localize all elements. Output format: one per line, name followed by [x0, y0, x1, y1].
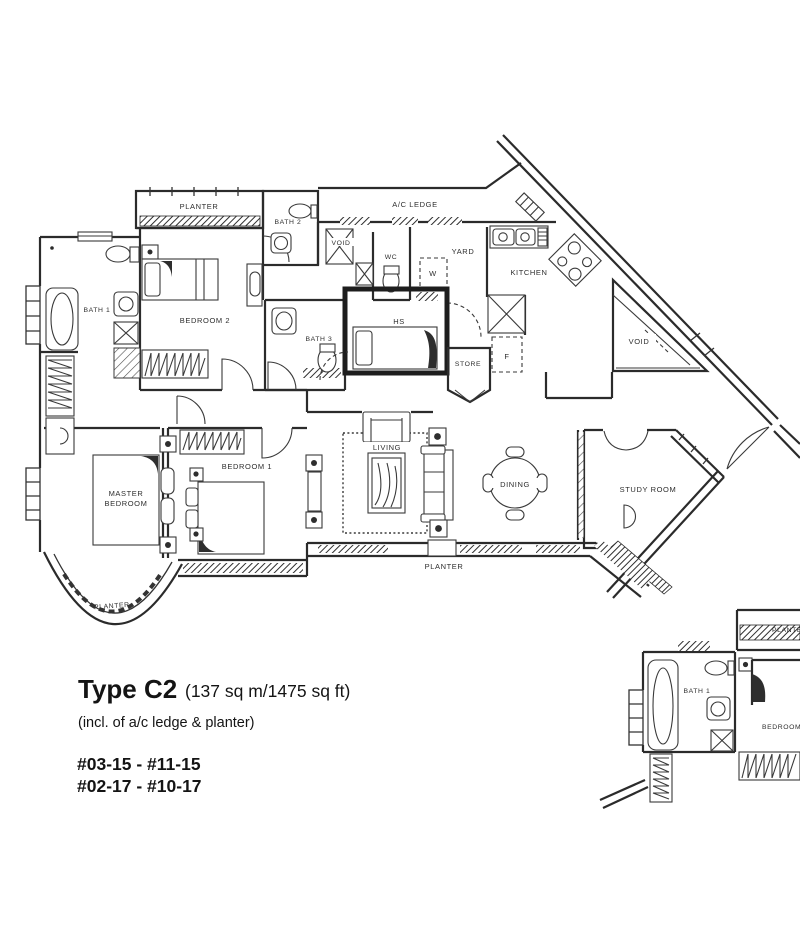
room-master-bedroom: MASTER BEDROOM	[46, 356, 176, 553]
void-large-label: VOID	[629, 337, 650, 346]
bedroom1-label: BEDROOM 1	[222, 462, 272, 471]
living-label: LIVING	[373, 443, 401, 452]
room-store: STORE	[448, 348, 490, 402]
void-large: VOID	[613, 280, 707, 371]
room-wc: WC	[383, 254, 399, 292]
washer-label: W	[429, 269, 437, 278]
planter-curved-bay: PLANTER	[44, 552, 182, 624]
floor-plan-svg: PLANTER BATH 2 A/C LEDGE VOID WC YARD W	[0, 0, 800, 929]
yard-label: YARD	[452, 247, 475, 256]
wc-label: WC	[385, 254, 398, 261]
room-study: STUDY ROOM	[578, 427, 769, 598]
room-living: LIVING	[306, 412, 453, 537]
mini-bath1-label: BATH 1	[684, 688, 711, 695]
mini-planter-label: PLANTER	[772, 627, 800, 634]
planter-top-label: PLANTER	[180, 202, 219, 211]
unit-numbers-line2: #02-17 - #10-17	[77, 776, 202, 796]
title-block: Type C2 (137 sq m/1475 sq ft) (incl. of …	[77, 674, 350, 796]
hs-label: HS	[393, 317, 405, 326]
master-bedroom-label-1: MASTER	[109, 489, 144, 498]
room-bath2: BATH 2	[271, 204, 317, 253]
room-bedroom2: BEDROOM 2	[142, 245, 262, 378]
fridge-label: F	[504, 352, 509, 361]
shaft-and-fridge: F	[488, 295, 525, 372]
mini-plan: PLANTER BATH 1 BEDROOM 2	[600, 610, 800, 808]
room-planter-top: PLANTER	[180, 202, 219, 211]
mini-bedroom-label: BEDROOM 2	[762, 724, 800, 731]
bath3-label: BATH 3	[306, 336, 333, 343]
shaft-void: VOID	[326, 229, 373, 285]
room-kitchen: KITCHEN	[490, 193, 601, 286]
bath2-label: BATH 2	[275, 219, 302, 226]
bedroom2-label: BEDROOM 2	[180, 316, 230, 325]
ac-ledge-label: A/C LEDGE	[392, 200, 437, 209]
unit-area: (137 sq m/1475 sq ft)	[185, 681, 350, 701]
store-label: STORE	[455, 361, 481, 368]
room-bath3: BATH 3	[272, 308, 336, 372]
planter-bottom-label: PLANTER	[425, 562, 464, 571]
floor-plan-page: PLANTER BATH 2 A/C LEDGE VOID WC YARD W	[0, 0, 800, 929]
room-ac-ledge: A/C LEDGE	[392, 200, 437, 209]
unit-type-title: Type C2	[78, 674, 177, 704]
room-dining: DINING	[483, 447, 547, 520]
kitchen-label: KITCHEN	[510, 268, 547, 277]
planter-bottom: PLANTER	[307, 540, 650, 597]
master-bedroom-label-2: BEDROOM	[105, 499, 148, 508]
unit-numbers-line1: #03-15 - #11-15	[77, 754, 201, 774]
void-shaft-label: VOID	[331, 240, 350, 247]
room-hs: HS	[320, 289, 447, 380]
unit-note: (incl. of a/c ledge & planter)	[78, 715, 255, 731]
dining-label: DINING	[500, 480, 530, 489]
bath1-label: BATH 1	[84, 307, 111, 314]
study-label: STUDY ROOM	[620, 485, 677, 494]
room-bedroom1: BEDROOM 1	[180, 430, 272, 554]
